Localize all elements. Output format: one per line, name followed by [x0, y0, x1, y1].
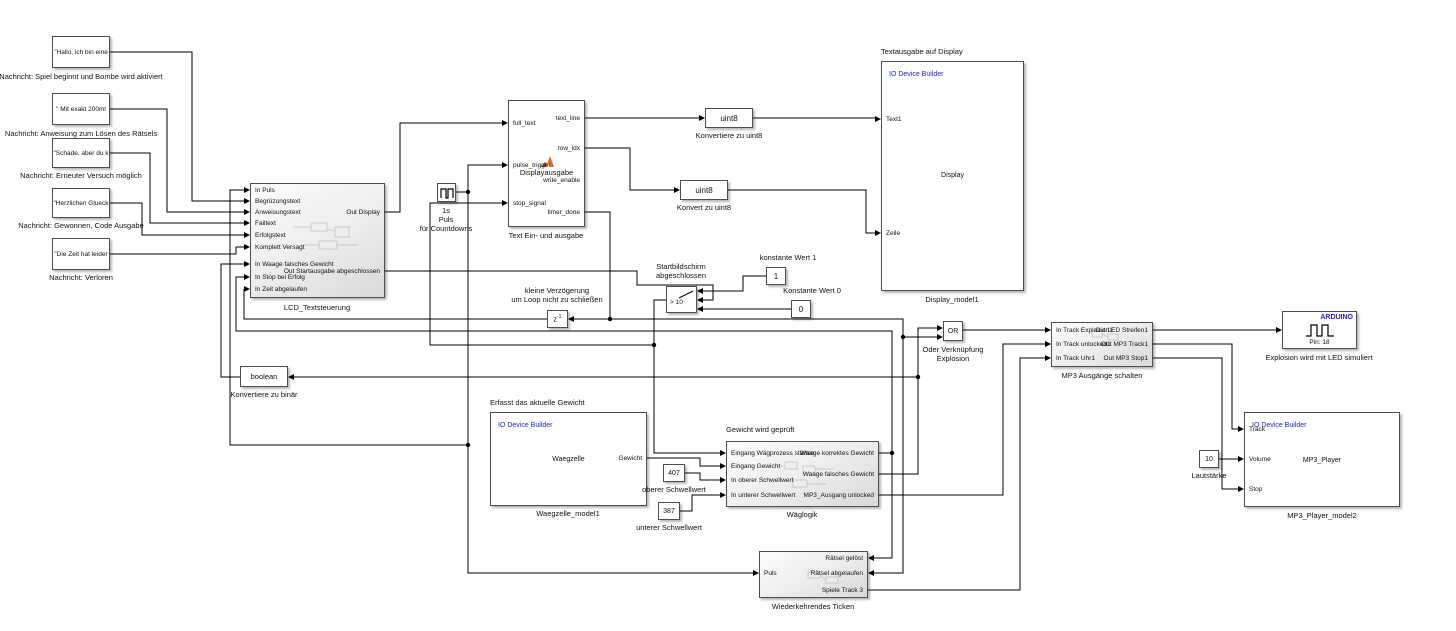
label-or-line1: Oder Verknüpfung: [923, 345, 984, 354]
fn-name: Displayausgabe: [509, 168, 584, 177]
block-msg-start[interactable]: "Hallo, ich bin eine: [52, 36, 110, 68]
io-device-builder-label: IO Device Builder: [889, 71, 943, 78]
port-mp3-ausgang-unlocked: MP3_Ausgang unlocked: [804, 493, 874, 500]
or-text: OR: [948, 328, 959, 335]
port-row-idx: row_idx: [558, 146, 580, 153]
label-waeglogik: Wäglogik: [787, 510, 818, 519]
title-erfasst-gewicht: Erfasst das aktuelle Gewicht: [490, 398, 585, 407]
label-mp3-player-model2: MP3_Player_model2: [1287, 511, 1357, 520]
port-waage-falsches-gewicht: Waage falsches Gewicht: [803, 472, 874, 479]
const1-value: 1: [774, 272, 778, 281]
label-switch-line2: abgeschlossen: [656, 271, 706, 280]
io-device-builder-label: IO Device Builder: [498, 422, 552, 429]
pulse-wave-icon: [1305, 322, 1337, 338]
port-eingang-gewicht: Eingang Gewicht: [731, 464, 780, 471]
port-in-unterer-schwellwert: In unterer Schwellwert: [731, 493, 795, 500]
label-display-model1: Display_model1: [925, 295, 978, 304]
label-msg-lost: Nachricht: Verloren: [49, 273, 113, 282]
block-wiederkehrendes-ticken[interactable]: Puls Rätsel gelöst Rätsel abgelaufen Spi…: [759, 551, 868, 598]
port-raetsel-geloest: Rätsel gelöst: [825, 556, 863, 563]
label-mp3-ausgaenge: MP3 Ausgänge schalten: [1062, 371, 1143, 380]
block-waeglogik[interactable]: Eingang Wägprozess starten Eingang Gewic…: [726, 441, 879, 507]
port-full-text: full_text: [513, 121, 535, 128]
label-waegzelle-model1: Waegzelle_model1: [536, 509, 600, 518]
port-stop: Stop: [1249, 487, 1262, 494]
label-msg-instruction: Nachricht: Anweisung zum Lösen des Rätse…: [5, 129, 157, 138]
label-unterer-schwellwert: unterer Schwellwert: [636, 523, 702, 532]
port-text-line: text_line: [556, 116, 580, 123]
block-mp3-ausgaenge[interactable]: In Track Explosion1 In Track unlocked1 I…: [1051, 322, 1153, 367]
inner-diagram-sketch: [291, 219, 361, 259]
block-pulse-generator[interactable]: [437, 183, 456, 202]
block-unit-delay[interactable]: z-1: [547, 310, 568, 328]
port-text1: Text1: [886, 117, 902, 124]
port-in-stop-bei-erfolg: In Stop bei Erfolg: [255, 275, 305, 282]
label-msg-retry: Nachricht: Erneuter Versuch möglich: [20, 171, 142, 180]
label-delay-line2: um Loop nicht zu schließen: [511, 295, 602, 304]
label-pulse-1s: 1s: [442, 206, 450, 215]
label-uint8-konvert: Konvert zu uint8: [677, 203, 731, 212]
port-erfolgstext: Erfolgstext: [255, 233, 286, 240]
label-lautstaerke: Lautstärke: [1191, 471, 1226, 480]
block-lcd-textsteuerung[interactable]: In Puls Begrüzungstext Anweisungstext Fa…: [250, 183, 385, 298]
msg-retry-text: "Schade, aber du k: [53, 150, 108, 157]
title-textausgabe-display: Textausgabe auf Display: [881, 47, 963, 56]
label-konstante-1: konstante Wert 1: [760, 253, 817, 262]
block-const-1[interactable]: 1: [766, 267, 786, 285]
block-text-ein-ausgabe[interactable]: Displayausgabe full_text pulse_trigger s…: [508, 100, 585, 227]
block-const-0[interactable]: 0: [791, 300, 811, 318]
label-lcd-textsteuerung: LCD_Textsteuerung: [284, 303, 350, 312]
port-waage-korrektes-gewicht: Waage korrektes Gewicht: [800, 451, 874, 458]
label-explosion-led: Explosion wird mit LED simuliert: [1265, 353, 1372, 362]
label-pulse-countdowns: für Countdowns: [420, 224, 473, 233]
block-msg-lost[interactable]: "Die Zeit hat leider: [52, 238, 110, 270]
port-pulse-trigger: pulse_trigger: [513, 163, 551, 170]
port-track: Track: [1249, 427, 1265, 434]
boolean-text: boolean: [251, 372, 278, 381]
label-konvertiere-binaer: Konvertiere zu binär: [230, 390, 297, 399]
port-gewicht: Gewicht: [619, 456, 642, 463]
block-const-387[interactable]: 387: [658, 502, 680, 520]
msg-lost-text: "Die Zeit hat leider: [54, 251, 107, 258]
arduino-pin-label: Pin: 18: [1283, 339, 1356, 346]
block-or[interactable]: OR: [943, 321, 963, 341]
display-center-label: Display: [882, 172, 1023, 179]
label-msg-won: Nachricht: Gewonnen, Code Ausgabe: [18, 221, 144, 230]
label-delay-line1: kleine Verzögerung: [525, 286, 589, 295]
block-msg-instruction[interactable]: " Mit exakt 200ml: [52, 93, 110, 125]
block-const-10[interactable]: 10: [1199, 450, 1219, 468]
block-display-model1[interactable]: IO Device Builder Display Text1 Zeile: [881, 61, 1024, 291]
block-msg-won[interactable]: "Herzlichen Glueck: [52, 188, 110, 218]
port-puls: Puls: [764, 571, 777, 578]
label-text-ein-ausgabe: Text Ein- und ausgabe: [509, 231, 584, 240]
port-zeile: Zeile: [886, 231, 900, 238]
port-in-zeit-abgelaufen: In Zeit abgelaufen: [255, 287, 307, 294]
block-waegzelle-model1[interactable]: IO Device Builder Waegzelle Gewicht: [490, 412, 647, 506]
port-out-display: Out Display: [346, 210, 380, 217]
block-uint8-konvertiere[interactable]: uint8: [705, 108, 753, 128]
port-anweisungstext: Anweisungstext: [255, 210, 301, 217]
port-timer-done: timer_done: [547, 210, 580, 217]
port-stop-signal: stop_signal: [513, 201, 546, 208]
block-mp3-player-model2[interactable]: IO Device Builder MP3_Player Track Volum…: [1244, 412, 1400, 507]
port-out-mp3-stop1: Out MP3 Stop1: [1104, 356, 1148, 363]
label-switch-line1: Startbildschirm: [656, 262, 706, 271]
block-const-407[interactable]: 407: [663, 464, 685, 482]
simulink-canvas: "Hallo, ich bin eine Nachricht: Spiel be…: [0, 0, 1456, 631]
port-in-puls: In Puls: [255, 188, 275, 195]
label-uint8-konvertiere: Konvertiere zu uint8: [696, 131, 763, 140]
arduino-brand-label: ARDUINO: [1320, 314, 1353, 321]
signal-wires: [0, 0, 1456, 631]
port-out-mp3-track1: Out MP3 Track1: [1101, 342, 1148, 349]
block-uint8-konvert[interactable]: uint8: [680, 180, 728, 200]
label-pulse-puls: Puls: [439, 215, 454, 224]
port-begruessungstext: Begrüzungstext: [255, 199, 300, 206]
label-or-line2: Explosion: [937, 354, 970, 363]
delay-text: z-1: [554, 314, 562, 323]
uint8a-text: uint8: [720, 114, 737, 123]
switch-criteria: > 10: [667, 299, 696, 306]
block-switch[interactable]: > 10: [666, 286, 697, 313]
port-failtext: Failtext: [255, 221, 276, 228]
port-komplett-versagt: Komplett Versagt: [255, 245, 305, 252]
port-out-led-streifen1: Out LED Streifen1: [1095, 328, 1148, 335]
block-boolean[interactable]: boolean: [240, 366, 288, 387]
label-konstante-0: Konstante Wert 0: [783, 286, 841, 295]
c407-value: 407: [668, 470, 680, 477]
port-in-oberer-schwellwert: In oberer Schwellwert: [731, 478, 794, 485]
label-msg-start: Nachricht: Spiel beginnt und Bombe wird …: [0, 72, 163, 81]
port-write-enable: write_enable: [543, 178, 580, 185]
block-msg-retry[interactable]: "Schade, aber du k: [52, 138, 110, 168]
msg-instruction-text: " Mit exakt 200ml: [56, 106, 106, 113]
msg-won-text: "Herzlichen Glueck: [53, 200, 108, 207]
label-oberer-schwellwert: oberer Schwellwert: [642, 485, 706, 494]
switch-lever-icon: [669, 289, 696, 299]
pulse-wave-icon: [439, 185, 455, 201]
title-gewicht-geprueft: Gewicht wird geprüft: [726, 425, 794, 434]
port-in-track-uhr1: In Track Uhr1: [1056, 356, 1095, 363]
const0-value: 0: [799, 305, 803, 314]
block-arduino-digital-output[interactable]: ARDUINO Pin: 18: [1282, 311, 1357, 349]
c387-value: 387: [663, 508, 675, 515]
uint8b-text: uint8: [695, 186, 712, 195]
label-wiederkehrendes-ticken: Wiederkehrendes Ticken: [772, 602, 855, 611]
port-out-startausgabe: Out Startausgabe abgeschlossen: [284, 269, 380, 276]
port-volume: Volume: [1249, 457, 1271, 464]
c10-value: 10: [1205, 456, 1213, 463]
msg-start-text: "Hallo, ich bin eine: [54, 49, 108, 56]
port-raetsel-abgelaufen: Rätsel abgelaufen: [811, 571, 863, 578]
port-spiele-track-3: Spiele Track 3: [822, 588, 863, 595]
